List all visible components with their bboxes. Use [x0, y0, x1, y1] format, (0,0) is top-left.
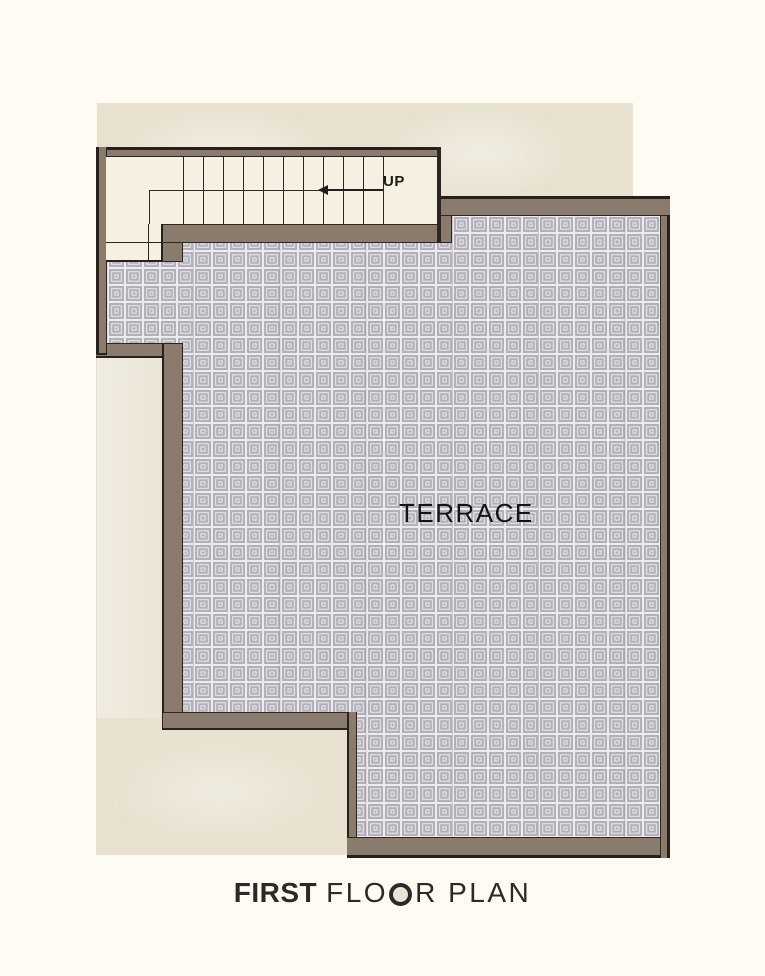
terrace-tile: [626, 251, 643, 268]
terrace-tile: [505, 716, 522, 733]
terrace-tile: [574, 734, 591, 751]
terrace-tile: [315, 647, 332, 664]
terrace-tile: [419, 440, 436, 457]
terrace-tile: [591, 596, 608, 613]
terrace-tile: [488, 561, 505, 578]
terrace-tile: [643, 596, 660, 613]
terrace-tile: [384, 561, 401, 578]
terrace-tile: [574, 302, 591, 319]
terrace-tile: [401, 423, 418, 440]
terrace-tile: [350, 320, 367, 337]
terrace-tile: [522, 440, 539, 457]
terrace-tile: [539, 509, 556, 526]
terrace-tile: [488, 803, 505, 820]
terrace-tile: [194, 475, 211, 492]
terrace-tile: [539, 682, 556, 699]
terrace-tile: [557, 233, 574, 250]
terrace-tile: [608, 233, 625, 250]
terrace-tile: [626, 544, 643, 561]
terrace-tile: [401, 458, 418, 475]
stair-wall-top: [97, 147, 441, 157]
terrace-tile: [229, 337, 246, 354]
terrace-tile: [246, 320, 263, 337]
terrace-tile: [367, 544, 384, 561]
terrace-tile: [626, 458, 643, 475]
terrace-tile: [263, 268, 280, 285]
terrace-tile: [591, 699, 608, 716]
title-word-plan: PLAN: [448, 877, 531, 909]
terrace-tile: [436, 682, 453, 699]
terrace-tile: [453, 406, 470, 423]
terrace-tile: [470, 216, 487, 233]
terrace-tile: [384, 630, 401, 647]
terrace-tile: [160, 285, 177, 302]
plan-title: FIRST FLOOR PLAN: [0, 877, 765, 909]
terrace-tile: [436, 354, 453, 371]
terrace-tile: [557, 268, 574, 285]
terrace-tile: [488, 630, 505, 647]
terrace-tile: [315, 371, 332, 388]
terrace-tile: [315, 458, 332, 475]
terrace-tile: [488, 440, 505, 457]
terrace-tile: [505, 320, 522, 337]
terrace-tile: [643, 458, 660, 475]
terrace-tile: [194, 613, 211, 630]
terrace-tile: [212, 492, 229, 509]
terrace-tile: [591, 268, 608, 285]
terrace-tile: [608, 630, 625, 647]
terrace-tile: [229, 302, 246, 319]
terrace-tile: [332, 475, 349, 492]
terrace-tile: [488, 751, 505, 768]
terrace-tile: [436, 716, 453, 733]
terrace-tile: [350, 578, 367, 595]
terrace-tile: [522, 285, 539, 302]
terrace-tile: [212, 682, 229, 699]
terrace-tile: [608, 268, 625, 285]
terrace-tile: [539, 492, 556, 509]
terrace-tile: [350, 544, 367, 561]
terrace-tile: [367, 751, 384, 768]
terrace-tile: [401, 440, 418, 457]
terrace-tile: [436, 785, 453, 802]
terrace-tile: [453, 544, 470, 561]
terrace-tile: [350, 561, 367, 578]
stair-wall-corner: [163, 243, 183, 262]
terrace-tile: [384, 751, 401, 768]
terrace-tile: [539, 268, 556, 285]
terrace-tile: [419, 596, 436, 613]
terrace-tile: [367, 716, 384, 733]
terrace-tile: [212, 406, 229, 423]
terrace-tile: [608, 768, 625, 785]
terrace-tile: [419, 613, 436, 630]
terrace-tile: [281, 285, 298, 302]
terrace-tile: [453, 734, 470, 751]
terrace-tile: [608, 216, 625, 233]
terrace-tile: [367, 613, 384, 630]
terrace-tile: [436, 768, 453, 785]
terrace-tile: [626, 337, 643, 354]
terrace-tile: [591, 320, 608, 337]
terrace-tile: [229, 371, 246, 388]
terrace-tile: [470, 820, 487, 837]
terrace-tile: [557, 768, 574, 785]
terrace-tile: [367, 803, 384, 820]
terrace-tile: [384, 803, 401, 820]
terrace-tile: [108, 320, 125, 337]
terrace-tile: [436, 665, 453, 682]
terrace-tile: [108, 268, 125, 285]
terrace-tile: [574, 251, 591, 268]
terrace-tile: [470, 544, 487, 561]
terrace-tile: [470, 371, 487, 388]
terrace-tile: [453, 285, 470, 302]
terrace-tile: [194, 544, 211, 561]
terrace-tile: [591, 751, 608, 768]
terrace-tile: [298, 302, 315, 319]
terrace-tile: [470, 389, 487, 406]
terrace-tile: [281, 647, 298, 664]
terrace-tile: [574, 630, 591, 647]
terrace-tile: [436, 613, 453, 630]
terrace-tile: [419, 302, 436, 319]
terrace-tile: [436, 699, 453, 716]
terrace-tile: [384, 302, 401, 319]
terrace-tile: [626, 596, 643, 613]
terrace-tile: [522, 527, 539, 544]
terrace-tile: [505, 423, 522, 440]
terrace-tile: [419, 647, 436, 664]
terrace-tile: [574, 354, 591, 371]
terrace-tile: [522, 820, 539, 837]
terrace-tile: [367, 337, 384, 354]
terrace-tile: [608, 371, 625, 388]
terrace-tile: [453, 630, 470, 647]
terrace-tile: [229, 596, 246, 613]
terrace-tile: [608, 354, 625, 371]
terrace-tile: [591, 578, 608, 595]
terrace-tile: [643, 337, 660, 354]
terrace-tile: [350, 665, 367, 682]
terrace-tile: [626, 803, 643, 820]
terrace-tile: [608, 527, 625, 544]
terrace-tile: [453, 596, 470, 613]
terrace-tile: [539, 716, 556, 733]
title-word-floor-plan: FLOOR PLAN: [326, 877, 531, 909]
terrace-tile: [401, 320, 418, 337]
wall-right: [660, 196, 670, 858]
terrace-tile: [608, 803, 625, 820]
terrace-tile: [263, 561, 280, 578]
terrace-tile: [608, 251, 625, 268]
terrace-tile: [453, 302, 470, 319]
stair-lower-steps: [106, 224, 163, 262]
terrace-tile: [626, 423, 643, 440]
terrace-tile: [522, 406, 539, 423]
terrace-tile: [384, 578, 401, 595]
terrace-tile: [488, 768, 505, 785]
terrace-tile: [453, 527, 470, 544]
terrace-tile: [488, 337, 505, 354]
terrace-tile: [315, 665, 332, 682]
terrace-tile: [488, 665, 505, 682]
terrace-tile: [574, 665, 591, 682]
terrace-tile: [194, 630, 211, 647]
terrace-tile: [453, 251, 470, 268]
terrace-tile: [522, 320, 539, 337]
terrace-tile: [539, 544, 556, 561]
terrace-tile: [608, 820, 625, 837]
terrace-tile: [591, 509, 608, 526]
terrace-tile: [557, 458, 574, 475]
terrace-tile: [574, 768, 591, 785]
terrace-tile: [488, 233, 505, 250]
terrace-tile: [643, 527, 660, 544]
wall-bottom: [347, 837, 670, 858]
terrace-tile: [505, 302, 522, 319]
terrace-tile: [522, 458, 539, 475]
terrace-tile: [539, 785, 556, 802]
terrace-tile: [522, 785, 539, 802]
terrace-tile: [298, 285, 315, 302]
terrace-tile: [401, 268, 418, 285]
terrace-tile: [212, 561, 229, 578]
terrace-tile: [522, 630, 539, 647]
terrace-tile: [557, 596, 574, 613]
terrace-tile: [229, 561, 246, 578]
terrace-tile: [522, 699, 539, 716]
terrace-tile: [453, 751, 470, 768]
terrace-tile: [453, 354, 470, 371]
terrace-tile: [626, 492, 643, 509]
terrace-tile: [332, 354, 349, 371]
terrace-tile: [470, 251, 487, 268]
terrace-tile: [332, 458, 349, 475]
terrace-tile: [315, 320, 332, 337]
terrace-tile: [384, 320, 401, 337]
terrace-tile: [574, 458, 591, 475]
terrace-tile: [522, 354, 539, 371]
terrace-tile: [470, 596, 487, 613]
terrace-tile: [557, 682, 574, 699]
stair-landing-edge: [149, 190, 150, 224]
terrace-tile: [626, 320, 643, 337]
terrace-tile: [246, 647, 263, 664]
terrace-tile: [453, 682, 470, 699]
terrace-tile: [470, 785, 487, 802]
terrace-tile: [505, 527, 522, 544]
terrace-tile: [281, 337, 298, 354]
terrace-tile: [436, 337, 453, 354]
terrace-tile: [263, 458, 280, 475]
terrace-tile: [419, 803, 436, 820]
terrace-tile: [608, 665, 625, 682]
terrace-tile: [281, 440, 298, 457]
terrace-tile: [125, 320, 142, 337]
terrace-tile: [315, 492, 332, 509]
terrace-tile: [591, 216, 608, 233]
terrace-tile: [160, 320, 177, 337]
terrace-tile: [332, 630, 349, 647]
terrace-tile: [263, 544, 280, 561]
terrace-tile: [246, 492, 263, 509]
terrace-tile: [574, 320, 591, 337]
terrace-tile: [281, 251, 298, 268]
terrace-tile: [591, 233, 608, 250]
terrace-tile: [384, 440, 401, 457]
terrace-tile: [608, 475, 625, 492]
terrace-tile: [436, 406, 453, 423]
terrace-tile: [626, 578, 643, 595]
terrace-tile: [436, 371, 453, 388]
terrace-tile: [643, 320, 660, 337]
terrace-tile: [505, 371, 522, 388]
terrace-tile: [470, 751, 487, 768]
terrace-tile: [505, 630, 522, 647]
terrace-tile: [436, 578, 453, 595]
terrace-tile: [419, 527, 436, 544]
terrace-tile: [626, 699, 643, 716]
stair-step-line: [106, 242, 163, 243]
terrace-tile: [229, 268, 246, 285]
terrace-tile: [298, 423, 315, 440]
terrace-tile: [212, 458, 229, 475]
terrace-tile: [401, 647, 418, 664]
terrace-tile: [315, 337, 332, 354]
terrace-tile: [643, 406, 660, 423]
terrace-tile: [298, 613, 315, 630]
terrace-tile: [626, 613, 643, 630]
terrace-tile: [246, 596, 263, 613]
terrace-tile: [591, 527, 608, 544]
terrace-tile: [488, 285, 505, 302]
terrace-tile: [350, 389, 367, 406]
terrace-tile: [246, 354, 263, 371]
terrace-tile: [229, 665, 246, 682]
terrace-tile: [401, 803, 418, 820]
terrace-tile: [436, 302, 453, 319]
terrace-tile: [522, 216, 539, 233]
terrace-tile: [608, 699, 625, 716]
terrace-tile: [194, 302, 211, 319]
terrace-tile: [608, 613, 625, 630]
terrace-tile: [229, 613, 246, 630]
terrace-tile: [194, 251, 211, 268]
terrace-tile: [367, 647, 384, 664]
terrace-tile: [315, 251, 332, 268]
terrace-tile: [626, 561, 643, 578]
terrace-tile: [229, 527, 246, 544]
terrace-tile: [574, 613, 591, 630]
terrace-tile: [557, 699, 574, 716]
terrace-tile: [488, 578, 505, 595]
terrace-tile: [281, 302, 298, 319]
terrace-tile: [574, 527, 591, 544]
stair-tread-line: [383, 157, 384, 224]
terrace-tile: [557, 561, 574, 578]
terrace-tile: [401, 699, 418, 716]
terrace-tile: [125, 302, 142, 319]
terrace-tile: [643, 682, 660, 699]
terrace-tile: [229, 285, 246, 302]
terrace-tile: [557, 716, 574, 733]
terrace-tile: [298, 320, 315, 337]
terrace-tile: [453, 578, 470, 595]
terrace-tile: [539, 596, 556, 613]
terrace-tile: [557, 216, 574, 233]
terrace-tile: [626, 389, 643, 406]
terrace-tile: [315, 578, 332, 595]
terrace-tile: [143, 320, 160, 337]
terrace-tile: [608, 285, 625, 302]
title-floor-post: R: [415, 877, 438, 909]
terrace-tile: [212, 337, 229, 354]
terrace-tile: [436, 647, 453, 664]
terrace-tile: [401, 613, 418, 630]
terrace-tile: [626, 751, 643, 768]
terrace-tile: [539, 337, 556, 354]
terrace-tile: [281, 354, 298, 371]
terrace-tile: [350, 423, 367, 440]
terrace-tile: [332, 665, 349, 682]
terrace-tile: [539, 578, 556, 595]
terrace-tile: [401, 665, 418, 682]
terrace-tile: [194, 647, 211, 664]
terrace-tile: [401, 371, 418, 388]
terrace-tile: [194, 561, 211, 578]
terrace-tile: [470, 803, 487, 820]
terrace-tile: [350, 475, 367, 492]
terrace-tile: [626, 285, 643, 302]
terrace-tile: [315, 389, 332, 406]
terrace-tile: [263, 371, 280, 388]
terrace-tile: [522, 578, 539, 595]
terrace-tile: [212, 665, 229, 682]
terrace-tile: [367, 440, 384, 457]
terrace-tile: [401, 406, 418, 423]
terrace-tile: [246, 630, 263, 647]
terrace-tile: [505, 820, 522, 837]
terrace-tile: [384, 389, 401, 406]
terrace-tile: [332, 337, 349, 354]
terrace-tile: [557, 251, 574, 268]
terrace-tile: [505, 389, 522, 406]
terrace-tile: [350, 371, 367, 388]
terrace-tile: [522, 734, 539, 751]
terrace-tile: [419, 251, 436, 268]
terrace-tile: [453, 561, 470, 578]
terrace-tile: [419, 268, 436, 285]
terrace-tile: [384, 406, 401, 423]
terrace-tile: [332, 440, 349, 457]
terrace-tile: [298, 354, 315, 371]
terrace-tile: [246, 423, 263, 440]
up-arrow-line: [327, 189, 383, 191]
terrace-tile: [626, 371, 643, 388]
terrace-tile: [505, 475, 522, 492]
terrace-tile: [367, 665, 384, 682]
terrace-tile: [522, 423, 539, 440]
terrace-tile: [436, 561, 453, 578]
terrace-tile: [384, 354, 401, 371]
terrace-tile: [557, 389, 574, 406]
terrace-tile: [281, 406, 298, 423]
terrace-tile: [539, 285, 556, 302]
terrace-tile: [574, 475, 591, 492]
terrace-tile: [263, 475, 280, 492]
terrace-tile: [470, 423, 487, 440]
